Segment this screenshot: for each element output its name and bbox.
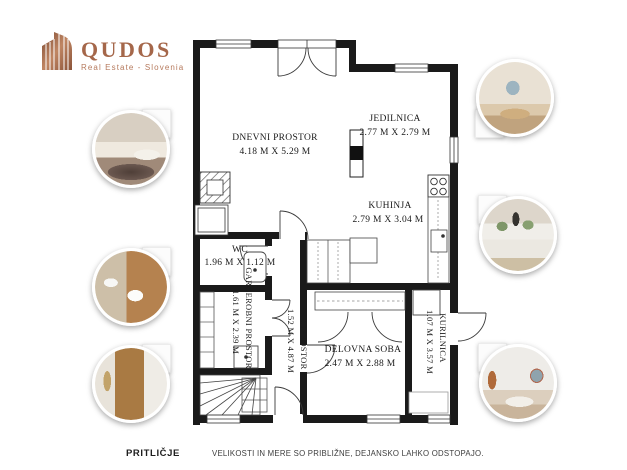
fireplace xyxy=(200,172,230,203)
room-name-jedilnica: JEDILNICA xyxy=(369,114,420,124)
photo-frame xyxy=(92,110,170,188)
room-name-kurilnica: KURILNICA xyxy=(438,313,448,363)
dining-room-photo xyxy=(476,59,554,137)
room-dims-kurilnica: 1.07 M X 3.57 M xyxy=(425,310,435,374)
room-name-kuhinja: KUHINJA xyxy=(368,201,411,211)
stove xyxy=(428,175,449,197)
room-dims-garderobni: 1.61 M X 2.39 M xyxy=(231,290,241,354)
dining-room-image xyxy=(479,62,551,134)
photo-frame xyxy=(92,345,170,423)
work-room-photo xyxy=(479,344,557,422)
hallway-photo xyxy=(92,345,170,423)
kitchen-photo xyxy=(479,196,557,274)
room-dims-kuhinja: 2.79 M X 3.04 M xyxy=(352,215,423,225)
room-dims-dnevni: 4.18 M X 5.29 M xyxy=(239,147,310,157)
living-room-image xyxy=(95,113,167,185)
french-door-threshold xyxy=(278,40,336,48)
disclaimer-text: VELIKOSTI IN MERE SO PRIBLIŽNE, DEJANSKO… xyxy=(212,449,484,458)
kitchen-image xyxy=(482,199,554,271)
photo-frame xyxy=(479,196,557,274)
room-name-garderobni: GARDEROBNI PROSTOR xyxy=(244,267,254,368)
bathroom-image xyxy=(95,251,167,323)
built-in-wardrobe xyxy=(315,292,405,310)
room-name-predprostor: PREDPROSTOR xyxy=(299,306,309,369)
room-dims-delovna: 2.47 M X 2.88 M xyxy=(324,359,395,369)
bathroom-photo xyxy=(92,248,170,326)
photo-frame xyxy=(476,59,554,137)
living-room-photo xyxy=(92,110,170,188)
room-dims-wc: 1.96 M X 1.12 M xyxy=(204,258,275,268)
room-dims-predprostor: 1.52 M X 4.87 M xyxy=(286,309,296,373)
room-name-delovna: DELOVNA SOBA xyxy=(325,345,402,355)
room-name-dnevni: DNEVNI PROSTOR xyxy=(232,133,318,143)
room-dims-jedilnica: 2.77 M X 2.79 M xyxy=(359,128,430,138)
floor-label: PRITLIČJE xyxy=(126,448,180,459)
photo-frame xyxy=(479,344,557,422)
room-name-wc: WC xyxy=(232,245,248,255)
hallway-image xyxy=(95,348,167,420)
work-room-image xyxy=(482,347,554,419)
photo-frame xyxy=(92,248,170,326)
